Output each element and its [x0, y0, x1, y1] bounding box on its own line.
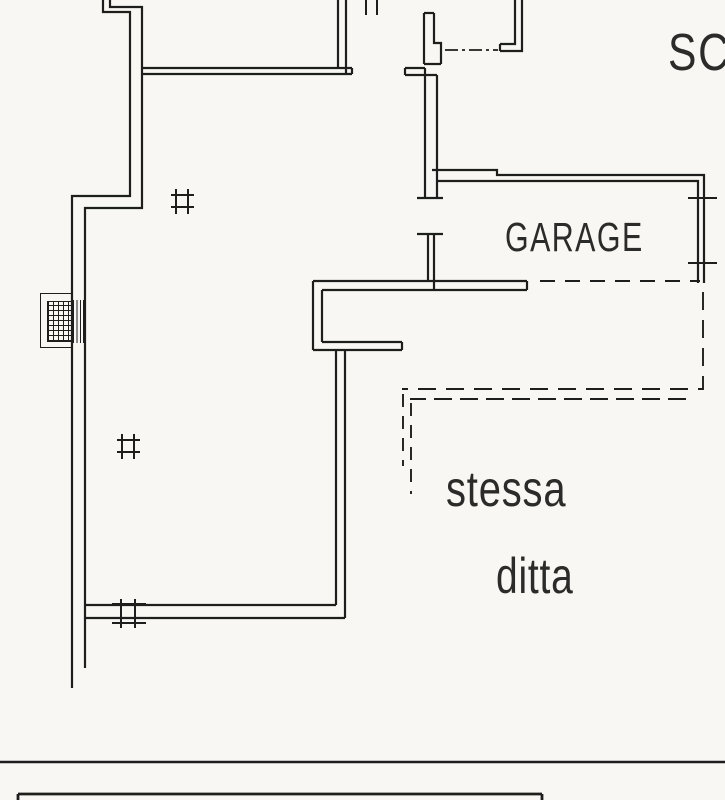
floor-plan-page: GARAGE stessa ditta SC [0, 0, 725, 800]
wall-section-break-ticks [688, 198, 717, 263]
footer-title-block-edge [18, 794, 542, 800]
upper-right-wall [424, 13, 441, 64]
window-tick-mark [117, 434, 140, 459]
chimney-wall-hatch [73, 300, 86, 343]
left-wall-outline [72, 0, 352, 688]
door-opening-mark [366, 0, 377, 15]
floorplan-svg [0, 0, 725, 800]
scale-heading-partial: SC [668, 27, 725, 79]
garage-left-wall [405, 68, 443, 290]
garage-room-label: GARAGE [505, 217, 644, 258]
ditta-label: ditta [496, 551, 574, 601]
window-tick-mark [112, 599, 146, 628]
lower-room-walls [85, 350, 345, 618]
window-tick-mark [171, 189, 194, 214]
middle-wall [313, 281, 527, 350]
stessa-label: stessa [446, 464, 566, 514]
chimney-flue-hatch [47, 301, 72, 342]
right-top-wall [500, 0, 522, 51]
